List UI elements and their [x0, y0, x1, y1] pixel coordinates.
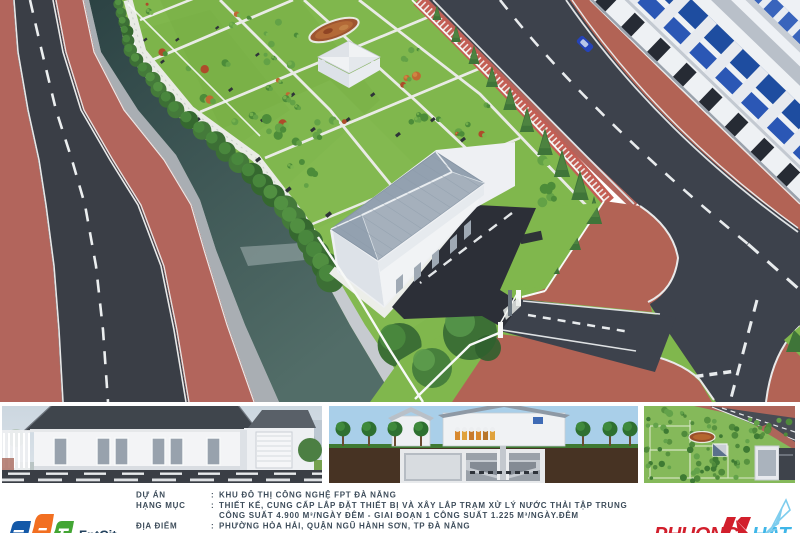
svg-text:PHƯỜNG HÒA HẢI, QUẬN NGŨ HÀNH: PHƯỜNG HÒA HẢI, QUẬN NGŨ HÀNH SƠN, TP ĐÀ…	[219, 522, 470, 531]
svg-text:KHU ĐÔ THỊ CÔNG NGHỆ FPT ĐÀ NẴ: KHU ĐÔ THỊ CÔNG NGHỆ FPT ĐÀ NẴNG	[219, 491, 397, 500]
svg-text:THIẾT KẾ, CUNG CẤP LẮP ĐẶT THI: THIẾT KẾ, CUNG CẤP LẮP ĐẶT THIẾT BỊ VÀ X…	[219, 500, 627, 510]
svg-text::: :	[211, 522, 214, 531]
svg-text::: :	[211, 501, 214, 510]
svg-text:DỰ ÁN: DỰ ÁN	[136, 491, 166, 500]
svg-text::: :	[211, 491, 214, 500]
svg-text:ĐỊA ĐIỂM: ĐỊA ĐIỂM	[136, 522, 177, 531]
svg-text:HẠNG MỤC: HẠNG MỤC	[136, 501, 186, 510]
svg-text:CÔNG SUẤT 4.900 M³/NGÀY ĐÊM -: CÔNG SUẤT 4.900 M³/NGÀY ĐÊM - GIAI ĐOẠN …	[219, 510, 579, 520]
svg-text:FptCit: FptCit	[79, 528, 117, 534]
